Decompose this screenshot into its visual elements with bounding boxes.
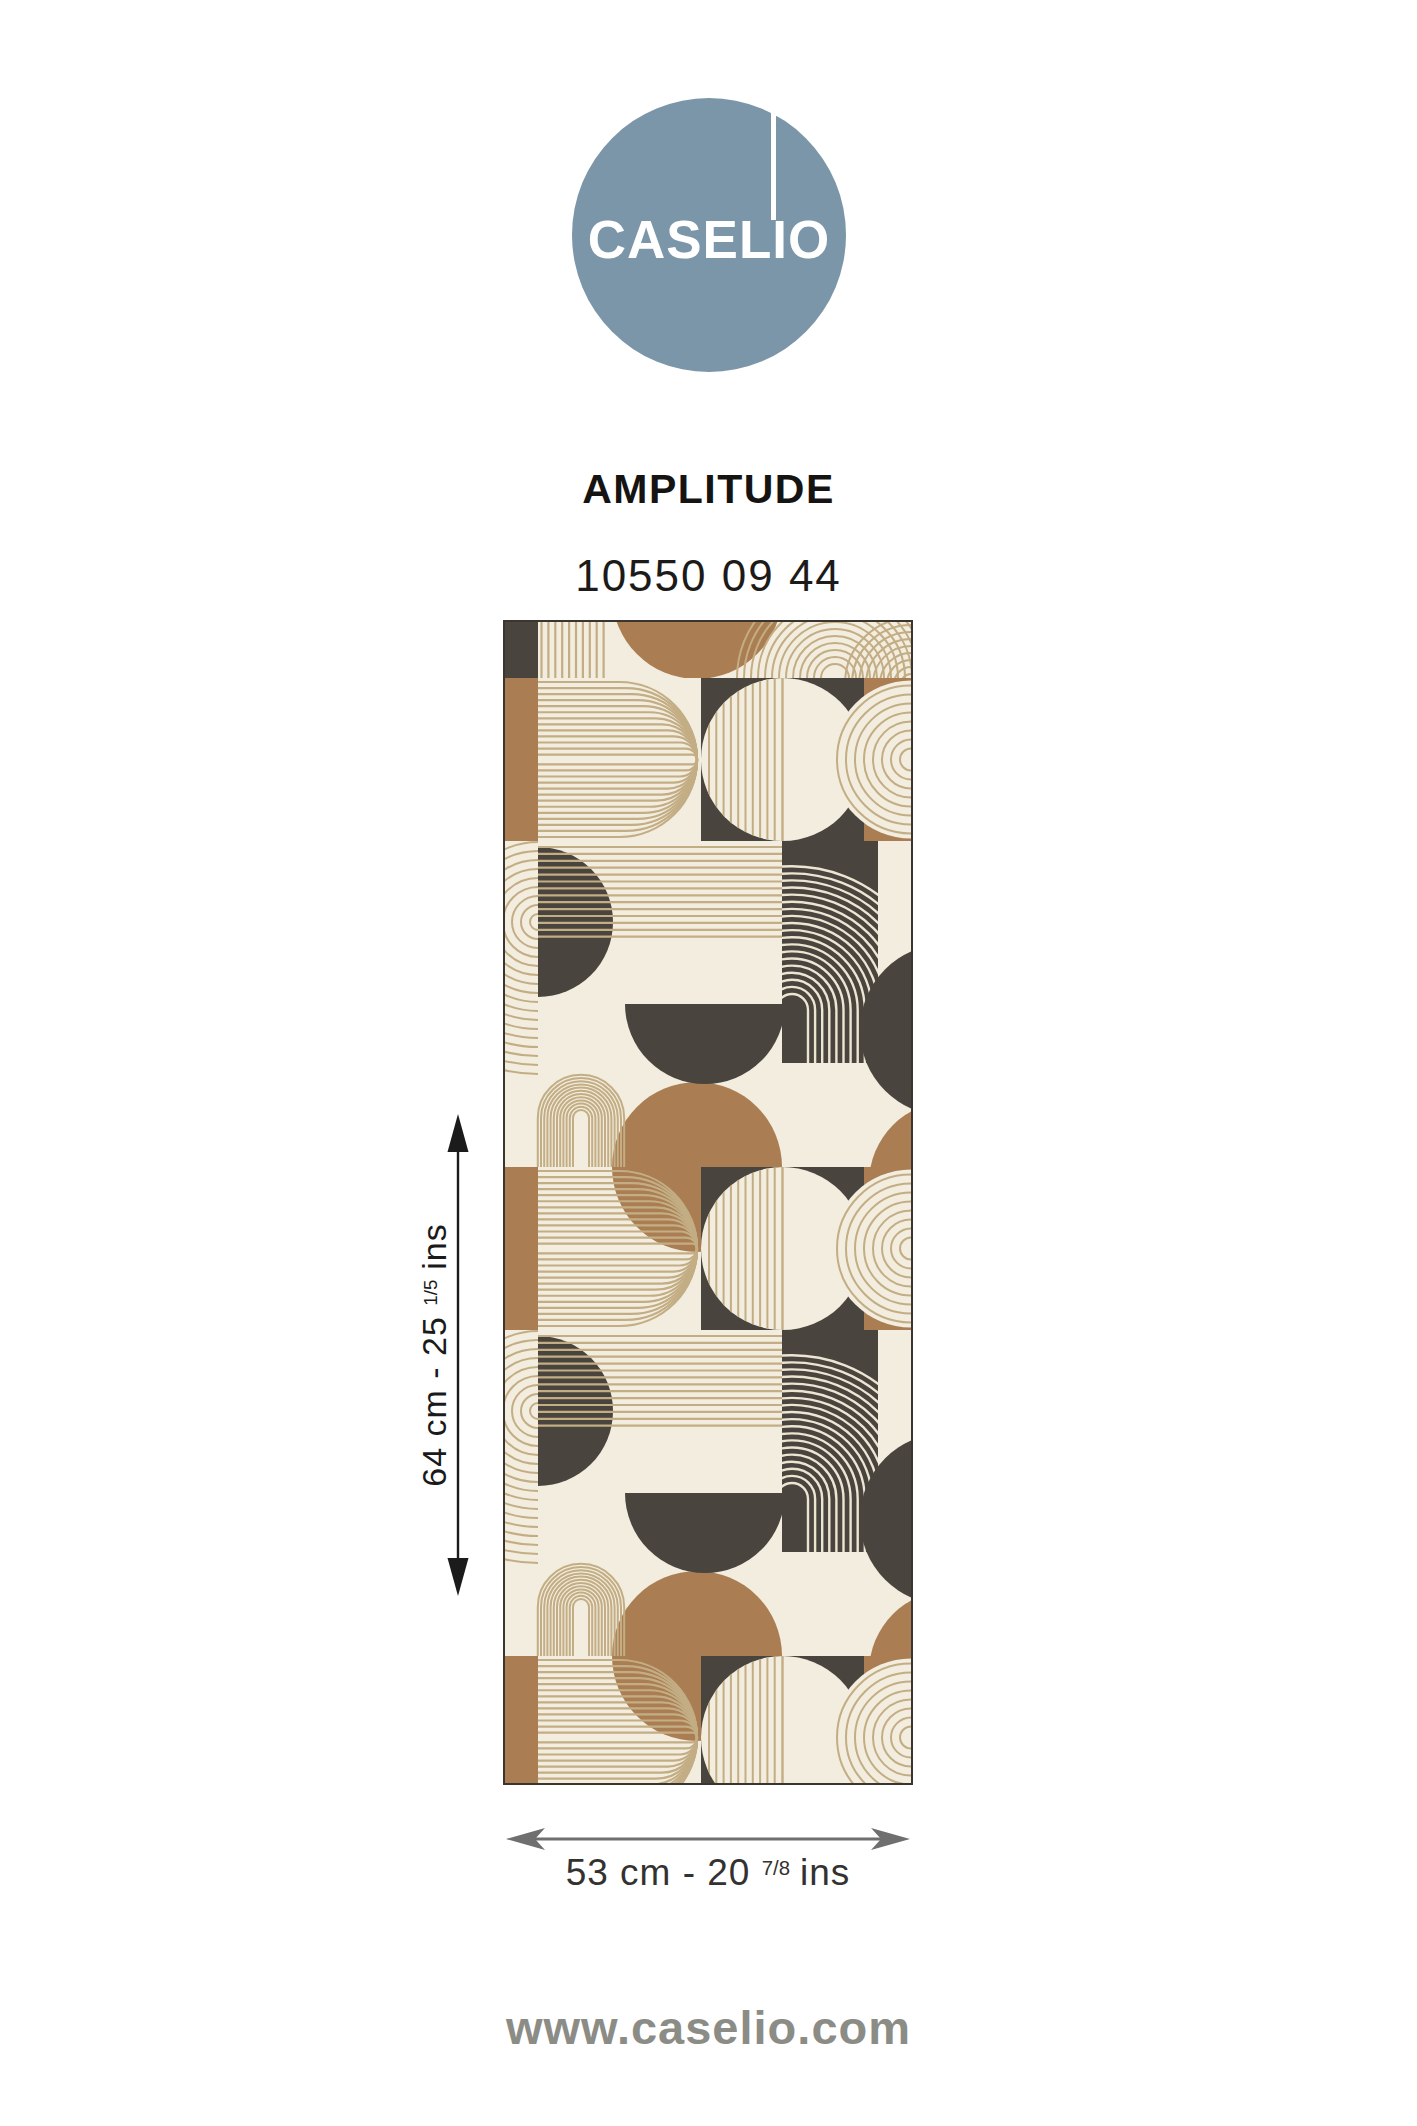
wallpaper-pattern-graphic: [505, 622, 911, 1783]
width-fraction: 7/8: [762, 1857, 790, 1879]
width-unit: ins: [800, 1852, 850, 1893]
width-dimension-arrow-icon: [505, 1827, 911, 1855]
product-reference: 10550 09 44: [0, 551, 1417, 601]
wallpaper-sample-image: [503, 620, 913, 1785]
width-value: 53 cm - 20: [566, 1852, 751, 1893]
product-title: AMPLITUDE: [0, 466, 1417, 513]
width-dimension-label: 53 cm - 20 7/8ins: [505, 1852, 911, 1894]
logo-accent-line: [771, 112, 776, 220]
height-dimension-label: 64 cm - 25 1/5ins: [409, 1105, 453, 1605]
website-link[interactable]: www.caselio.com: [0, 2000, 1417, 2055]
height-value: 64 cm - 25: [415, 1316, 453, 1487]
logo-wordmark: CASELIO: [572, 213, 846, 266]
height-fraction: 1/5: [420, 1280, 441, 1306]
height-unit: ins: [415, 1223, 453, 1269]
product-sheet-page: CASELIO AMPLITUDE 10550 09 44 64 cm - 25…: [0, 0, 1417, 2126]
